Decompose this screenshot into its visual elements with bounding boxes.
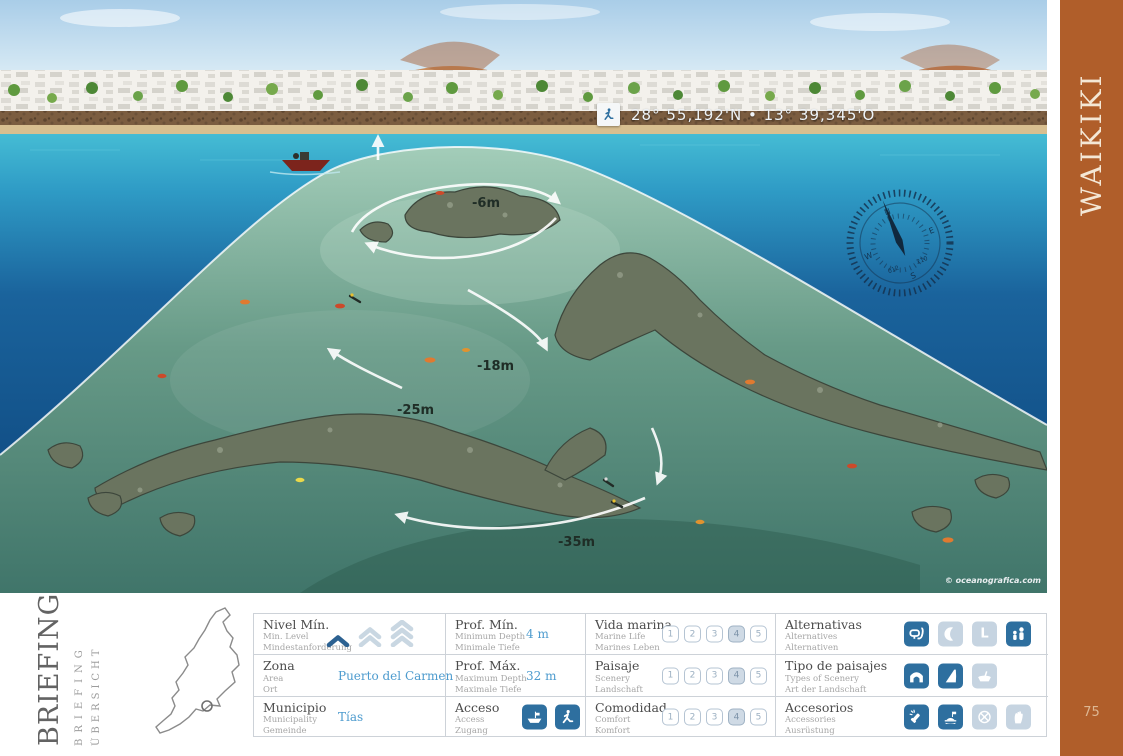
level-l-icon: L xyxy=(972,622,997,647)
vida-marina-sub-de: Marines Leben xyxy=(595,643,775,654)
dive-site-illustration: N E S W 012 210 28° 55,192'N • 13° 39,34… xyxy=(0,0,1047,593)
depth-label-25m: -25m xyxy=(397,403,434,418)
acceso-icons xyxy=(522,705,580,730)
cell-prof-max: Prof. Máx. Maximum Depth Maximale Tiefe … xyxy=(446,655,586,696)
cell-vida-marina: Vida marina Marine Life Marines Leben 1 … xyxy=(586,614,776,655)
tipo-paisajes-icons xyxy=(904,663,997,688)
briefing-title-en: BRIEFING xyxy=(74,606,85,746)
cell-nivel-min: Nivel Mín. Min. Level Mindestanforderung xyxy=(254,614,446,655)
arch-cave-icon xyxy=(904,663,929,688)
gps-coordinates: 28° 55,192'N • 13° 39,345'O xyxy=(597,103,875,126)
rating-3: 3 xyxy=(706,709,723,726)
rating-5: 5 xyxy=(750,709,767,726)
cell-accesorios: Accesorios Accessories Ausrüstung xyxy=(776,697,1048,737)
rating-5: 5 xyxy=(750,667,767,684)
rating-1: 1 xyxy=(662,626,679,643)
rating-2: 2 xyxy=(684,667,701,684)
shore-access-icon xyxy=(555,705,580,730)
island-outline xyxy=(156,608,239,733)
town-skyline xyxy=(0,70,1047,114)
municipio-sub-de: Gemeinde xyxy=(263,726,445,737)
dive-site-title: WAIKIKI xyxy=(1060,16,1123,216)
alternativas-icons: L xyxy=(904,622,1031,647)
comodidad-sub-de: Komfort xyxy=(595,726,775,737)
prof-min-value: 4 m xyxy=(526,627,549,641)
boat-access-icon xyxy=(522,705,547,730)
level-2-chevron-icon xyxy=(358,627,382,647)
torch-icon xyxy=(904,705,929,730)
cell-paisaje: Paisaje Scenery Landschaft 1 2 3 4 5 xyxy=(586,655,776,696)
rating-3: 3 xyxy=(706,626,723,643)
briefing-title-de: ÜBERSICHT xyxy=(91,606,102,746)
rating-2: 2 xyxy=(684,709,701,726)
rating-1: 1 xyxy=(662,709,679,726)
prof-min-label: Prof. Mín. xyxy=(455,618,585,632)
coordinates-text: 28° 55,192'N • 13° 39,345'O xyxy=(631,106,875,124)
rating-2: 2 xyxy=(684,626,701,643)
depth-label-18m: -18m xyxy=(477,359,514,374)
rating-1: 1 xyxy=(662,667,679,684)
snorkel-icon xyxy=(904,622,929,647)
rating-4-selected: 4 xyxy=(728,709,745,726)
rating-3: 3 xyxy=(706,667,723,684)
level-1-chevron-icon xyxy=(326,634,350,647)
cell-zona: Zona Area Ort Puerto del Carmen xyxy=(254,655,446,696)
comodidad-rating: 1 2 3 4 5 xyxy=(662,709,767,726)
zona-sub-de: Ort xyxy=(263,685,445,696)
family-icon xyxy=(1006,622,1031,647)
gloves-icon xyxy=(1006,705,1031,730)
prof-max-sub-en: Maximum Depth xyxy=(455,674,585,685)
cell-acceso: Acceso Access Zugang xyxy=(446,697,586,737)
paisaje-sub-de: Landschaft xyxy=(595,685,775,696)
cell-tipo-paisajes: Tipo de paisajes Types of Scenery Art de… xyxy=(776,655,1048,696)
depth-label-35m: -35m xyxy=(558,535,595,550)
accesorios-icons xyxy=(904,705,1031,730)
briefing-table: Nivel Mín. Min. Level Mindestanforderung… xyxy=(253,613,1047,737)
cell-comodidad: Comodidad Comfort Komfort 1 2 3 4 5 xyxy=(586,697,776,737)
vida-marina-rating: 1 2 3 4 5 xyxy=(662,626,767,643)
chapter-sidebar: WAIKIKI 75 xyxy=(1060,0,1123,756)
artwork-credit: © oceanografica.com xyxy=(945,576,1041,585)
wall-dropoff-icon xyxy=(938,663,963,688)
prof-max-sub-de: Maximale Tiefe xyxy=(455,685,585,696)
depth-label-6m: -6m xyxy=(472,196,500,211)
wreck-icon xyxy=(972,663,997,688)
shore-entry-marker-icon xyxy=(597,103,620,126)
paisaje-rating: 1 2 3 4 5 xyxy=(662,667,767,684)
rating-4-selected: 4 xyxy=(728,626,745,643)
book-page: { "sidebar": { "title": "WAIKIKI", "page… xyxy=(0,0,1123,756)
level-3-chevron-icon xyxy=(390,620,414,647)
municipio-value: Tías xyxy=(338,710,363,724)
prof-min-sub-en: Minimum Depth xyxy=(455,632,585,643)
cell-municipio: Municipio Municipality Gemeinde Tías xyxy=(254,697,446,737)
rating-4-selected: 4 xyxy=(728,667,745,684)
prof-max-label: Prof. Máx. xyxy=(455,659,585,673)
briefing-title-es: BRIEFING xyxy=(34,606,65,746)
page-number: 75 xyxy=(1060,705,1123,720)
night-dive-icon xyxy=(938,622,963,647)
lanzarote-map xyxy=(146,604,250,754)
zona-value: Puerto del Carmen xyxy=(338,669,453,683)
buoy-icon xyxy=(938,705,963,730)
prof-max-value: 32 m xyxy=(526,669,556,683)
cell-alternativas: Alternativas Alternatives Alternativen L xyxy=(776,614,1048,655)
dive-site-artwork: N E S W 012 210 xyxy=(0,0,1047,593)
cell-prof-min: Prof. Mín. Minimum Depth Minimale Tiefe … xyxy=(446,614,586,655)
prof-min-sub-de: Minimale Tiefe xyxy=(455,643,585,654)
level-indicator xyxy=(326,620,414,647)
rating-5: 5 xyxy=(750,626,767,643)
reel-icon xyxy=(972,705,997,730)
